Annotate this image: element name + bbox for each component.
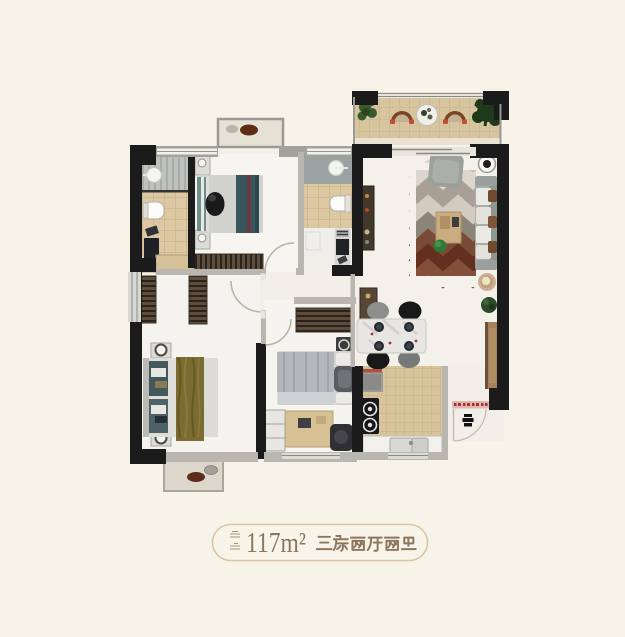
svg-text:117m²: 117m² [246, 527, 306, 559]
